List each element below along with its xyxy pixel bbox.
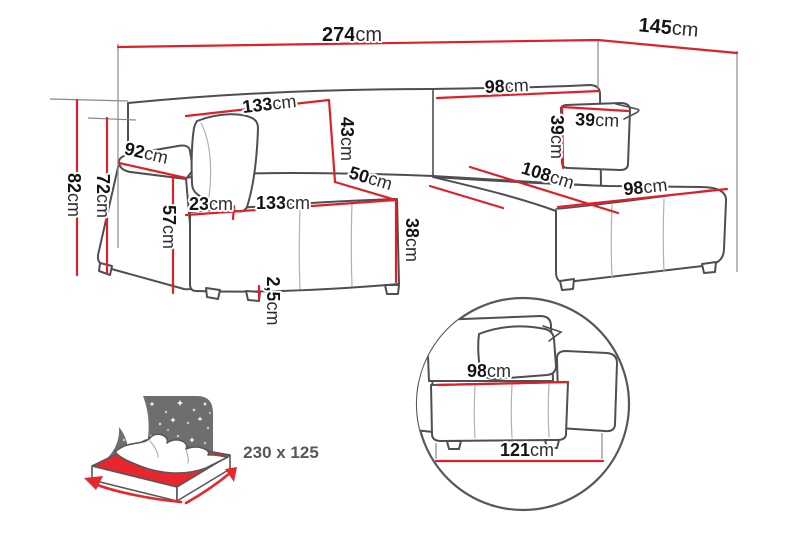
dim-label-pillow-width: 39cm — [575, 109, 620, 131]
sofa-foot — [385, 285, 399, 294]
dim-label-total-width: 274cm — [322, 24, 382, 46]
sofa-foot — [560, 279, 574, 290]
dim-label-pillow-height: 39cm — [547, 115, 567, 159]
dim-label-seat-width: 133cm — [256, 193, 310, 213]
dim-label-seat-height: 57cm — [159, 205, 179, 249]
dim-label-armrest-height: 72cm — [93, 174, 113, 218]
sleeping-area-label: 230 x 125 — [243, 443, 319, 462]
detail-foot — [447, 441, 461, 449]
dim-tick-armrest-width — [233, 206, 234, 219]
detail-seat — [431, 382, 568, 441]
product-dimension-diagram: 274cm 145cm 133cm 98cm 43cm 39cm 39cm 92… — [0, 0, 800, 533]
sofa-foot — [206, 288, 220, 299]
dim-label-seat-cushion-height: 38cm — [402, 218, 422, 262]
detail-label-base-width: 121cm — [500, 440, 554, 460]
dim-label-armrest-width: 23cm — [189, 194, 233, 214]
dim-label-foot-clearance: 2,5cm — [263, 276, 283, 325]
sofa-foot — [702, 262, 716, 273]
dim-label-total-height: 82cm — [64, 173, 84, 217]
dim-label-back-cushion-height: 43cm — [337, 117, 357, 161]
detail-label-seat-width: 98cm — [467, 361, 511, 381]
dim-label-backrest-right: 98cm — [484, 75, 529, 97]
